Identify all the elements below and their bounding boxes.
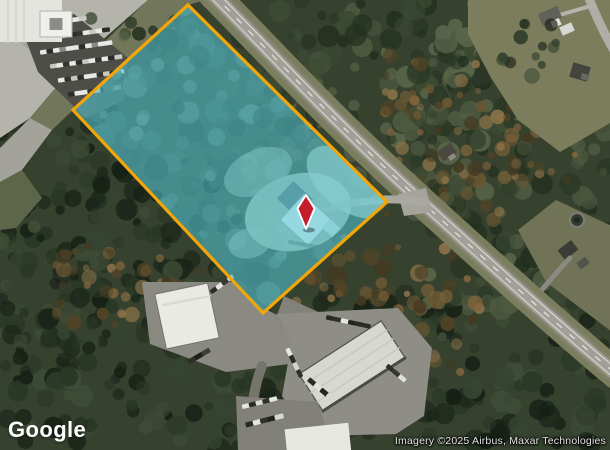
tree-blob <box>460 187 473 200</box>
tree-blob <box>415 266 429 280</box>
tree-blob <box>464 116 478 130</box>
tree-blob <box>504 396 513 405</box>
tree-blob <box>433 403 455 425</box>
tree-blob <box>493 366 515 388</box>
tree-blob <box>483 417 496 430</box>
pond-center <box>574 217 580 223</box>
tree-blob <box>37 389 55 407</box>
tree-blob <box>21 297 29 305</box>
tree-blob <box>84 242 92 250</box>
tree-blob <box>475 88 481 94</box>
tree-blob <box>479 116 493 130</box>
tree-blob <box>432 389 447 404</box>
tree-blob <box>124 307 140 323</box>
tree-blob <box>468 161 483 176</box>
tree-blob <box>337 270 347 280</box>
tree-blob <box>334 278 346 290</box>
tree-blob <box>287 32 295 40</box>
tree-blob <box>42 284 52 294</box>
tree-blob <box>387 128 395 136</box>
tree-blob <box>70 385 93 408</box>
tree-blob <box>435 30 458 53</box>
tree-blob <box>599 168 607 176</box>
tree-blob <box>136 381 150 395</box>
tree-blob <box>101 329 110 338</box>
tree-blob <box>528 161 535 168</box>
tree-blob <box>64 190 81 207</box>
tree-blob <box>528 349 544 365</box>
tree-blob <box>454 127 463 136</box>
tree-blob <box>68 165 79 176</box>
imagery-attribution: Imagery ©2025 Airbus, Maxar Technologies <box>395 435 606 447</box>
tree-blob <box>532 52 540 60</box>
tree-blob <box>216 396 238 418</box>
tree-blob <box>348 100 359 111</box>
tree-blob <box>380 100 395 115</box>
tree-blob <box>66 314 81 329</box>
tree-blob <box>312 295 329 312</box>
tree-blob <box>70 288 90 308</box>
tree-blob <box>185 404 203 422</box>
tree-blob <box>0 360 11 372</box>
tree-blob <box>113 237 124 248</box>
tree-blob <box>524 68 540 84</box>
tree-blob <box>465 356 480 371</box>
tree-blob <box>56 249 71 264</box>
tree-blob <box>483 162 492 171</box>
tree-blob <box>317 11 326 20</box>
tree-blob <box>511 158 521 168</box>
tree-blob <box>19 371 33 385</box>
tree-blob <box>83 264 90 271</box>
tree-blob <box>465 177 475 187</box>
tree-blob <box>301 34 316 49</box>
tree-blob <box>78 353 97 372</box>
tree-blob <box>56 299 66 309</box>
tree-blob <box>54 181 68 195</box>
tree-blob <box>410 155 422 167</box>
tree-blob <box>428 377 439 388</box>
tree-blob <box>43 334 56 347</box>
commercial-building <box>155 283 219 349</box>
tree-blob <box>411 141 426 156</box>
tree-blob <box>545 18 558 31</box>
tree-blob <box>137 263 152 278</box>
tree-blob <box>146 227 162 243</box>
tree-blob <box>523 133 533 143</box>
tree-blob <box>387 89 398 100</box>
tree-blob <box>395 244 401 250</box>
tree-blob <box>121 292 131 302</box>
tree-blob <box>571 156 585 170</box>
tree-blob <box>494 207 504 217</box>
tree-blob <box>496 232 516 252</box>
tree-blob <box>559 173 581 195</box>
tree-blob <box>404 291 410 297</box>
tree-blob <box>97 308 109 320</box>
tree-blob <box>58 367 78 387</box>
tree-blob <box>206 433 222 449</box>
tree-blob <box>133 360 151 378</box>
tree-blob <box>111 330 126 345</box>
tree-blob <box>384 212 390 218</box>
tree-blob <box>345 24 367 46</box>
tree-blob <box>421 284 434 297</box>
tree-blob <box>52 310 62 320</box>
tree-blob <box>509 352 520 363</box>
tree-blob <box>467 314 478 325</box>
tree-blob <box>97 167 108 178</box>
tree-blob <box>547 168 555 176</box>
tree-blob <box>90 191 108 209</box>
tree-blob <box>71 248 78 255</box>
tree-blob <box>350 62 360 72</box>
tree-blob <box>435 102 443 110</box>
tree-blob <box>548 41 560 53</box>
tree-blob <box>480 199 493 212</box>
tree-blob <box>125 17 137 29</box>
map-canvas <box>0 0 610 450</box>
tree-blob <box>413 57 428 72</box>
tree-blob <box>458 56 469 67</box>
tree-blob <box>395 141 409 155</box>
tree-blob <box>451 338 462 349</box>
tree-blob <box>380 29 402 51</box>
tree-blob <box>417 29 426 38</box>
tree-blob <box>428 58 437 67</box>
tree-blob <box>100 285 114 299</box>
tree-blob <box>522 371 543 392</box>
tree-blob <box>521 397 530 406</box>
tree-blob <box>383 48 398 63</box>
tree-blob <box>117 309 126 318</box>
tree-blob <box>116 362 127 373</box>
tree-blob <box>463 380 482 399</box>
tree-blob <box>183 251 201 269</box>
tree-blob <box>156 254 164 262</box>
tree-blob <box>9 253 24 268</box>
tree-blob <box>435 127 441 133</box>
tree-blob <box>445 361 454 370</box>
tree-blob <box>84 282 91 289</box>
google-logo[interactable]: Google <box>8 417 86 443</box>
tree-blob <box>476 101 487 112</box>
tree-blob <box>376 277 388 289</box>
tree-blob <box>269 0 291 22</box>
tree-blob <box>461 145 473 157</box>
tree-blob <box>456 368 464 376</box>
tree-blob <box>13 355 23 365</box>
tree-blob <box>571 374 592 395</box>
tree-blob <box>328 13 339 24</box>
tree-blob <box>103 247 116 260</box>
tree-blob <box>58 327 71 340</box>
tree-blob <box>464 275 471 282</box>
tree-blob <box>28 220 41 233</box>
tree-blob <box>563 176 571 184</box>
tree-blob <box>498 52 508 62</box>
tree-blob <box>327 294 335 302</box>
tree-blob <box>71 140 90 159</box>
tree-blob <box>472 60 480 68</box>
tree-blob <box>470 343 480 353</box>
tree-blob <box>514 30 528 44</box>
tree-blob <box>378 291 389 302</box>
tree-blob <box>417 103 424 110</box>
tree-blob <box>65 127 74 136</box>
tree-blob <box>588 143 600 155</box>
tree-blob <box>319 282 328 291</box>
tree-blob <box>381 244 394 257</box>
tree-blob <box>167 415 187 435</box>
tree-blob <box>116 261 125 270</box>
tree-blob <box>356 296 366 306</box>
tree-blob <box>68 266 78 276</box>
tree-blob <box>214 370 231 387</box>
tree-blob <box>496 113 504 121</box>
tree-blob <box>113 388 125 400</box>
tree-blob <box>455 74 468 87</box>
tree-blob <box>438 332 447 341</box>
tree-blob <box>427 135 437 145</box>
tree-blob <box>581 193 597 209</box>
tree-blob <box>231 378 246 393</box>
tree-blob <box>297 50 310 63</box>
tree-blob <box>318 25 340 47</box>
tree-blob <box>520 19 531 30</box>
tree-blob <box>441 176 449 184</box>
tree-blob <box>132 27 146 41</box>
tree-blob <box>204 402 213 411</box>
tree-blob <box>373 437 383 447</box>
tree-blob <box>417 129 424 136</box>
tree-blob <box>82 341 95 354</box>
tree-blob <box>335 290 343 298</box>
tree-blob <box>85 317 98 330</box>
tree-blob <box>193 267 201 275</box>
tree-blob <box>362 248 379 265</box>
tree-blob <box>55 150 71 166</box>
tree-blob <box>462 211 471 220</box>
tree-blob <box>509 416 528 435</box>
tree-blob <box>504 128 519 143</box>
tree-blob <box>58 282 66 290</box>
tree-blob <box>457 92 464 99</box>
tree-blob <box>544 408 552 416</box>
tree-blob <box>37 234 45 242</box>
tree-blob <box>116 199 138 221</box>
tree-blob <box>332 254 346 268</box>
tree-blob <box>468 295 483 310</box>
tree-blob <box>395 99 407 111</box>
tree-blob <box>57 353 71 367</box>
tree-blob <box>381 71 390 80</box>
courtyard <box>50 18 63 30</box>
tree-blob <box>154 402 170 418</box>
tree-blob <box>536 162 546 172</box>
tree-blob <box>168 360 190 382</box>
tree-blob <box>126 400 138 412</box>
tree-blob <box>47 133 62 148</box>
tree-blob <box>19 308 29 318</box>
tree-blob <box>139 207 150 218</box>
tree-blob <box>104 379 114 389</box>
tree-blob <box>538 42 547 51</box>
tree-blob <box>118 31 129 42</box>
tree-blob <box>453 161 464 172</box>
tree-blob <box>572 152 578 158</box>
tree-blob <box>425 84 434 93</box>
tree-blob <box>413 300 427 314</box>
tree-blob <box>425 148 439 162</box>
tree-blob <box>488 152 495 159</box>
tree-blob <box>497 143 505 151</box>
tree-blob <box>111 321 118 328</box>
tree-blob <box>200 414 220 434</box>
tree-blob <box>13 334 27 348</box>
tree-blob <box>439 290 452 303</box>
satellite-map[interactable]: Google Imagery ©2025 Airbus, Maxar Techn… <box>0 0 610 450</box>
tree-blob <box>4 281 14 291</box>
tree-blob <box>538 61 546 69</box>
tree-blob <box>55 206 64 215</box>
tree-blob <box>515 174 529 188</box>
tree-blob <box>89 207 105 223</box>
tree-blob <box>440 317 454 331</box>
tree-blob <box>344 250 355 261</box>
tree-blob <box>225 425 237 437</box>
tree-blob <box>63 390 73 400</box>
tree-blob <box>442 98 452 108</box>
tree-blob <box>413 111 422 120</box>
